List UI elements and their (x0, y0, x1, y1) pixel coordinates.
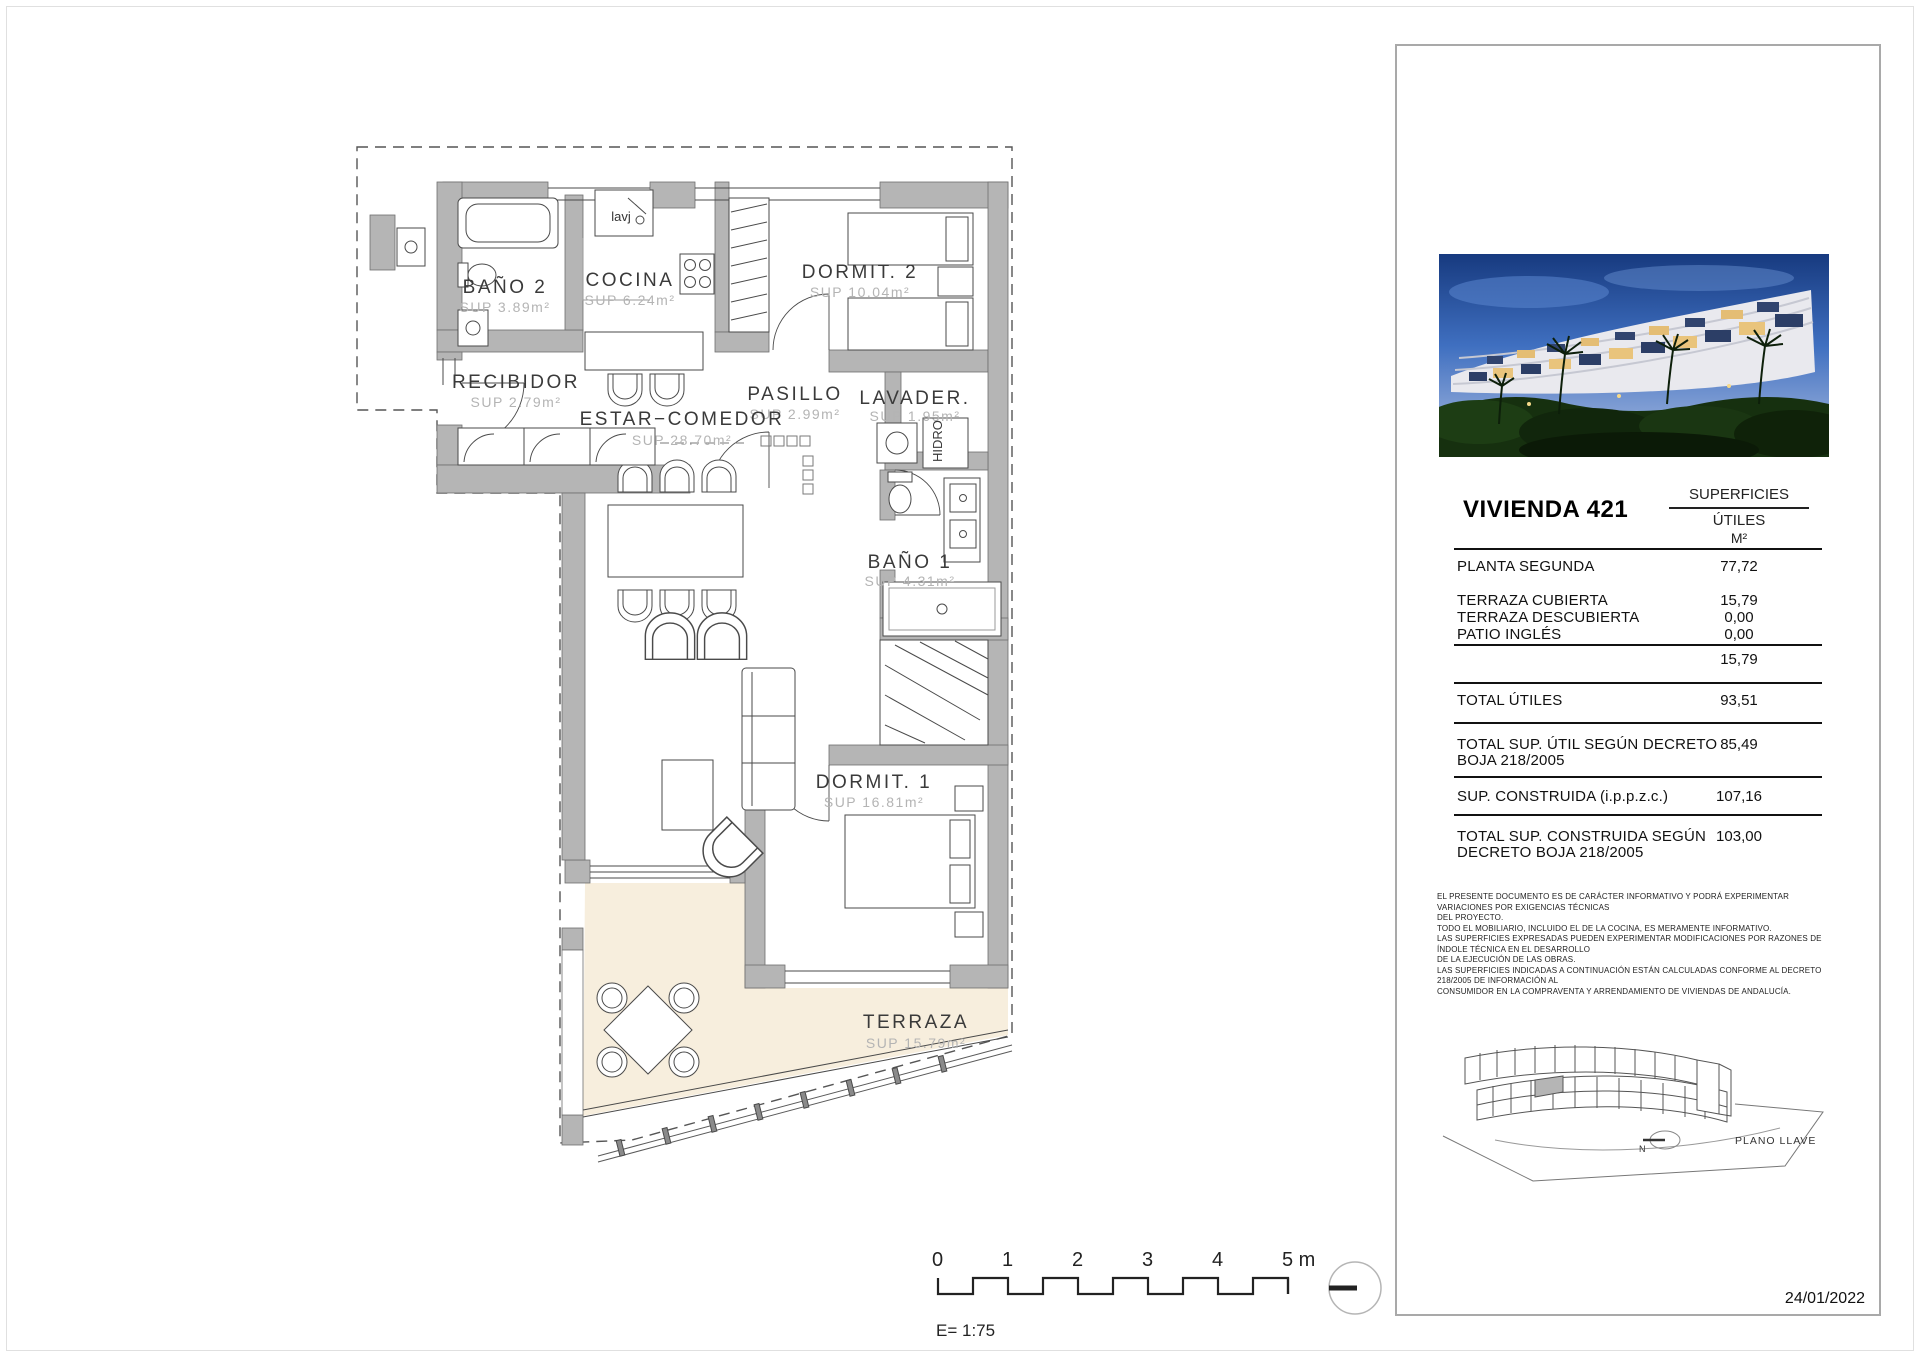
plan-date: 24/01/2022 (1785, 1290, 1865, 1308)
toilet-tank (888, 472, 912, 482)
disclaimer-line: DEL PROYECTO. (1437, 913, 1843, 924)
row-total-utiles: TOTAL ÚTILES (1457, 692, 1562, 709)
sofa (742, 668, 795, 810)
row-subtotal: 15,79 (1679, 651, 1799, 668)
scale-tick: 3 (1142, 1249, 1153, 1271)
floor-plan: lavj BAÑO 2 SUP 3.89m² COCINA SUP 6.24m²… (340, 120, 1030, 1200)
row-sup-construida: SUP. CONSTRUIDA (i.p.p.z.c.) (1457, 788, 1668, 805)
room-cocina: COCINA (586, 270, 675, 291)
sink (458, 310, 488, 346)
svg-text:SUP 2.79m²: SUP 2.79m² (471, 394, 562, 410)
disclaimer: EL PRESENTE DOCUMENTO ES DE CARÁCTER INF… (1437, 892, 1843, 997)
stove (680, 254, 714, 294)
shaft-fixture (397, 228, 425, 266)
dining-table (608, 505, 743, 577)
row-terraza-cubierta: TERRAZA CUBIERTA (1457, 592, 1608, 609)
scale-tick: 0 (932, 1249, 943, 1271)
divider (1454, 644, 1822, 646)
col-header: SUPERFICIES (1659, 486, 1819, 503)
coffee-table (662, 760, 713, 830)
nightstand (938, 267, 973, 296)
col-unit: M² (1659, 530, 1819, 546)
scale-tick: 2 (1072, 1249, 1083, 1271)
label-lavj: lavj (611, 209, 631, 224)
svg-text:SUP 16.81m²: SUP 16.81m² (824, 794, 924, 810)
scale-tick: 4 (1212, 1249, 1223, 1271)
shower (883, 582, 1001, 636)
divider (1454, 776, 1822, 778)
room-bano2: BAÑO 2 (463, 276, 548, 298)
disclaimer-line: DE LA EJECUCIÓN DE LAS OBRAS. (1437, 955, 1843, 966)
row-total-construida: TOTAL SUP. CONSTRUIDA SEGÚN (1457, 828, 1706, 845)
disclaimer-line: LAS SUPERFICIES EXPRESADAS PUEDEN EXPERI… (1437, 934, 1843, 955)
row-planta-segunda: PLANTA SEGUNDA (1457, 558, 1595, 575)
info-panel: VIVIENDA 421 SUPERFICIES ÚTILES M² PLANT… (1395, 44, 1881, 1316)
disclaimer-line: LAS SUPERFICIES INDICADAS A CONTINUACIÓN… (1437, 966, 1843, 987)
row-terraza-descubierta: TERRAZA DESCUBIERTA (1457, 609, 1639, 626)
room-recibidor: RECIBIDOR (452, 372, 580, 393)
disclaimer-line: CONSUMIDOR EN LA COMPRAVENTA Y ARRENDAMI… (1437, 987, 1843, 998)
toilet (889, 485, 911, 513)
terrace-pillar (562, 950, 583, 1115)
svg-text:SUP 6.24m²: SUP 6.24m² (585, 292, 676, 308)
scale-bar: 0 1 2 3 4 5 m E= 1:75 (930, 1248, 1390, 1348)
room-terraza: TERRAZA (863, 1012, 969, 1033)
scale-ruler (938, 1278, 1288, 1294)
disclaimer-line: TODO EL MOBILIARIO, INCLUIDO EL DE LA CO… (1437, 924, 1843, 935)
room-dormit2: DORMIT. 2 (802, 262, 918, 283)
kitchen-island (585, 332, 703, 370)
svg-text:SUP 15.79m²: SUP 15.79m² (866, 1035, 966, 1051)
scale-tick: 5 m (1282, 1249, 1315, 1271)
label-hidro: HIDRO (930, 420, 945, 462)
col-sub: ÚTILES (1659, 512, 1819, 529)
divider (1454, 682, 1822, 684)
divider (1454, 814, 1822, 816)
room-lavadero: LAVADER. (859, 388, 970, 409)
nightstand (955, 786, 983, 811)
svg-text:SUP 1.95m²: SUP 1.95m² (870, 408, 961, 424)
washer (877, 423, 917, 463)
svg-text:SUP 4.31m²: SUP 4.31m² (865, 573, 956, 589)
north-label: N (1639, 1144, 1646, 1154)
disclaimer-line: EL PRESENTE DOCUMENTO ES DE CARÁCTER INF… (1437, 892, 1843, 913)
unit-title: VIVIENDA 421 (1463, 496, 1628, 524)
scale-tick: 1 (1002, 1249, 1013, 1271)
nightstand (955, 912, 983, 937)
key-plan: N PLANO LLAVE (1435, 1018, 1840, 1208)
divider (1454, 548, 1822, 550)
scale-text: E= 1:75 (936, 1321, 995, 1340)
room-dormit1: DORMIT. 1 (816, 772, 932, 793)
building-photo (1439, 254, 1829, 457)
svg-text:SUP 10.04m²: SUP 10.04m² (810, 284, 910, 300)
svg-text:SUP 3.89m²: SUP 3.89m² (460, 299, 551, 315)
key-plan-label: PLANO LLAVE (1735, 1135, 1816, 1147)
svg-text:SUP 28.70m²: SUP 28.70m² (632, 432, 732, 448)
divider (1454, 722, 1822, 724)
room-pasillo: PASILLO (747, 384, 842, 405)
room-bano1: BAÑO 1 (868, 551, 953, 573)
row-patio-ingles: PATIO INGLÉS (1457, 626, 1561, 643)
closet (880, 640, 988, 745)
divider (1669, 507, 1809, 509)
room-estar: ESTAR−COMEDOR (580, 409, 785, 430)
